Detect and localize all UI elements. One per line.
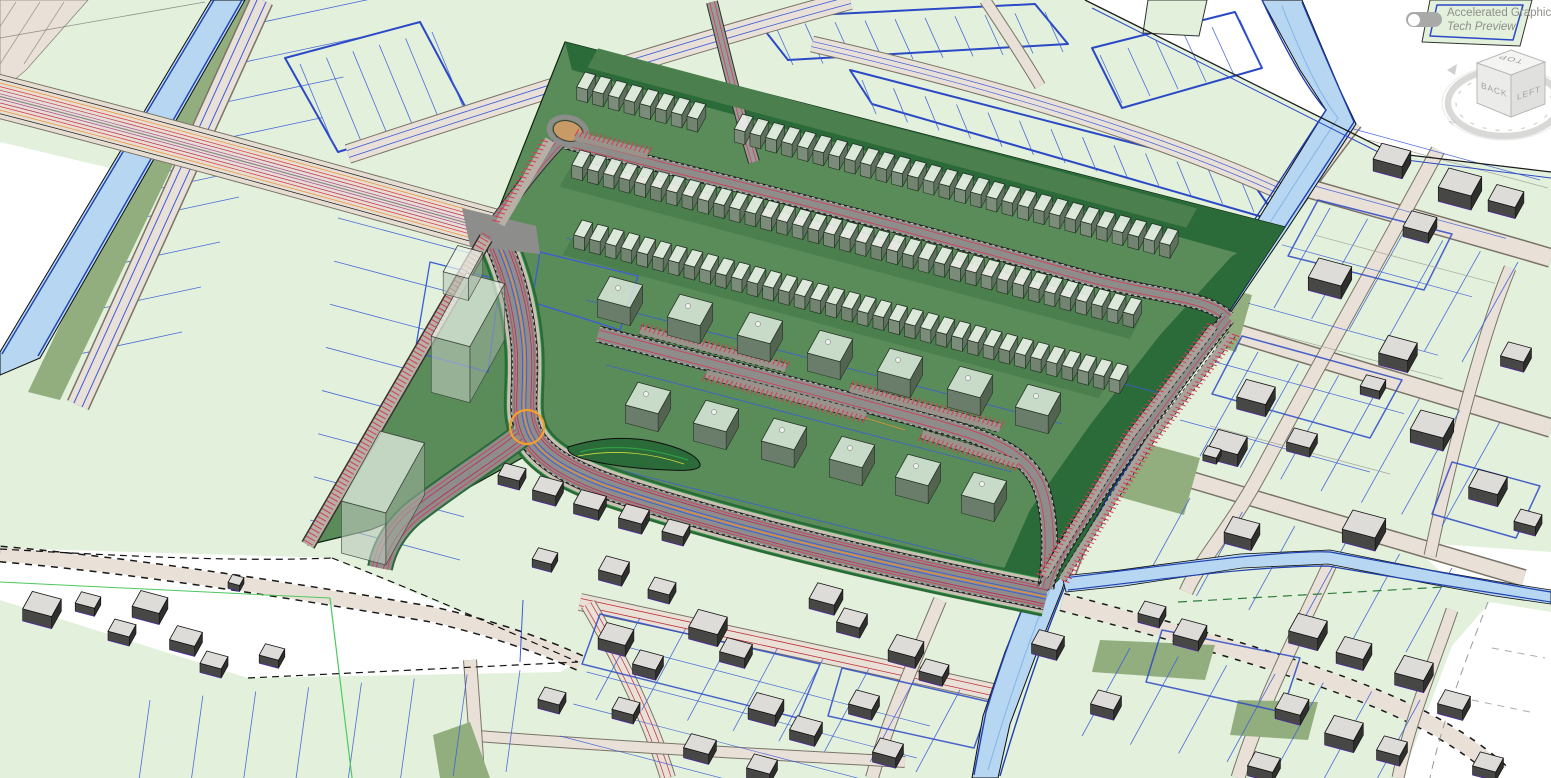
accelerated-graphics-label: Accelerated Graphics [1447, 7, 1551, 19]
civil3d-model-view: N TOP BACK LEFT Accelerated Graphics Tec… [0, 0, 1551, 778]
accelerated-graphics-toggle[interactable] [1406, 12, 1442, 27]
tech-preview-label: Tech Preview [1447, 21, 1516, 33]
model-viewport[interactable]: N TOP BACK LEFT [0, 0, 1551, 778]
model-3d-scene [0, 0, 1551, 778]
toggle-knob [1408, 14, 1420, 26]
